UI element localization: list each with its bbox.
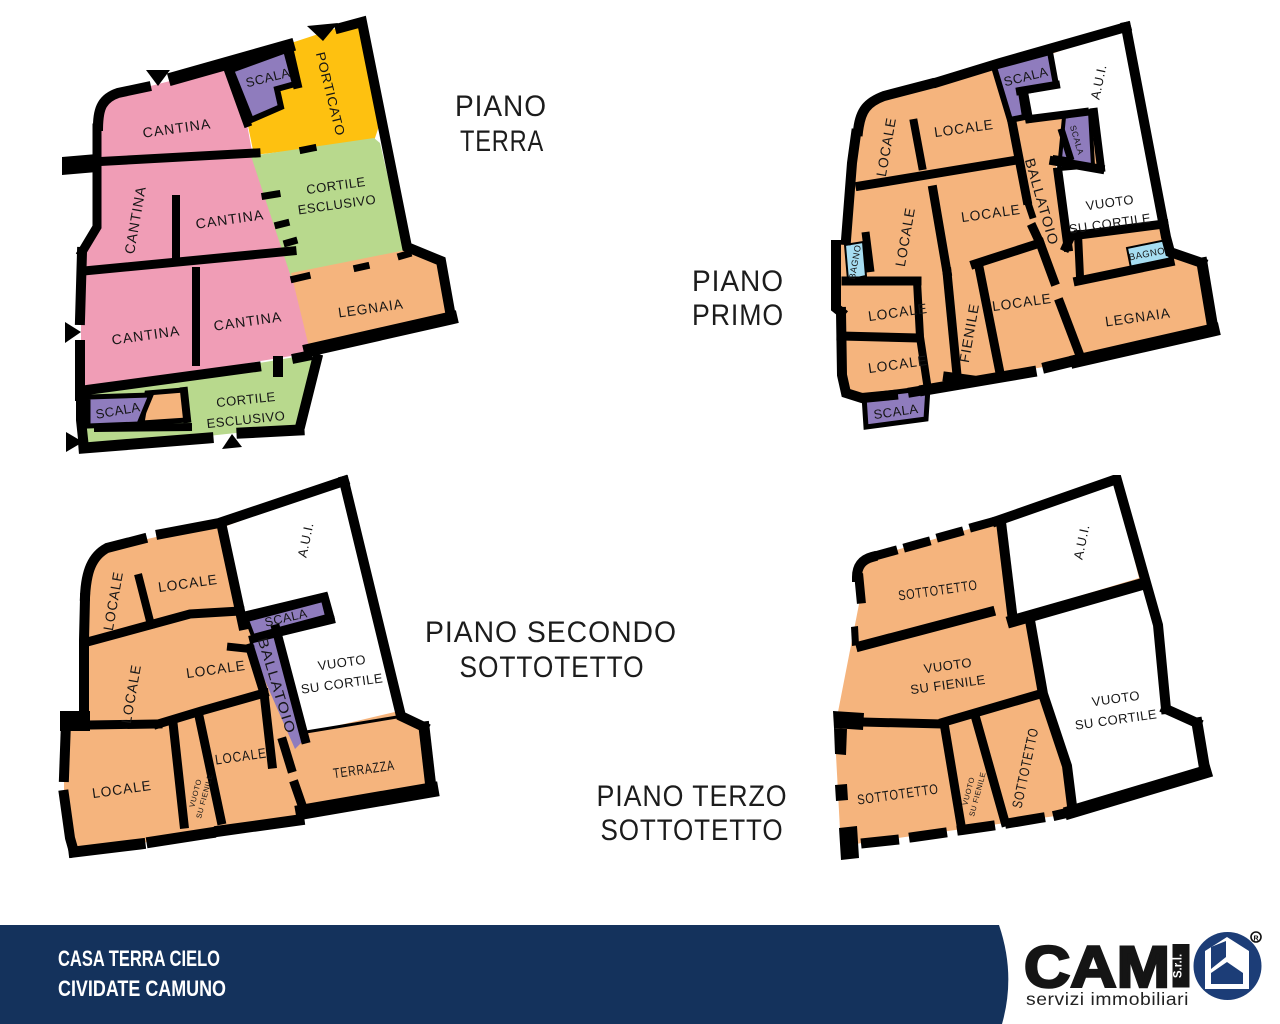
svg-text:CASA TERRA CIELO: CASA TERRA CIELO: [58, 946, 220, 971]
svg-text:PRIMO: PRIMO: [692, 299, 784, 332]
svg-text:S.r.l.: S.r.l.: [1173, 954, 1185, 978]
svg-text:TERRA: TERRA: [460, 125, 544, 158]
svg-text:PIANO: PIANO: [455, 90, 547, 123]
svg-text:PIANO SECONDO: PIANO SECONDO: [425, 616, 677, 649]
svg-text:servizi immobiliari: servizi immobiliari: [1026, 989, 1189, 1009]
svg-text:SOTTOTETTO: SOTTOTETTO: [601, 814, 784, 847]
svg-text:R: R: [1253, 936, 1258, 943]
svg-text:CIVIDATE CAMUNO: CIVIDATE CAMUNO: [58, 976, 226, 1001]
svg-text:PIANO TERZO: PIANO TERZO: [597, 780, 788, 813]
svg-text:PIANO: PIANO: [692, 265, 784, 298]
svg-text:SOTTOTETTO: SOTTOTETTO: [460, 651, 645, 684]
